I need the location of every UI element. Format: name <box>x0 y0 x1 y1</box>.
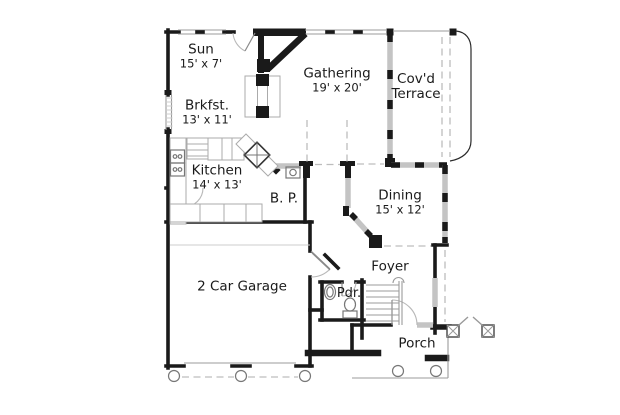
floor-plan-page: Sun 15' x 7' Gathering 19' x 20' Cov'd T… <box>0 0 620 415</box>
room-label-sun: Sun 15' x 7' <box>180 42 222 69</box>
room-label-dining: Dining 15' x 12' <box>375 188 425 215</box>
room-label-garage: 2 Car Garage <box>197 280 287 295</box>
floor-plan-drawing <box>0 0 620 415</box>
room-label-pdr: Pdr. <box>337 287 361 301</box>
room-label-terrace: Cov'd Terrace <box>391 72 440 102</box>
base-counters <box>170 204 262 222</box>
room-label-bp: B. P. <box>270 192 298 207</box>
garage-columns <box>169 371 311 382</box>
room-label-foyer: Foyer <box>371 260 408 275</box>
room-label-porch: Porch <box>398 337 435 352</box>
room-label-brkfst: Brkfst. 13' x 11' <box>182 98 232 125</box>
porch-columns <box>393 366 442 377</box>
media-cabinet <box>245 74 280 118</box>
room-label-gathering: Gathering 19' x 20' <box>303 66 370 93</box>
sink-icon <box>325 285 336 300</box>
pantry-shelves <box>187 138 208 159</box>
gate-post-icons <box>447 317 494 337</box>
room-label-kitchen: Kitchen 14' x 13' <box>192 163 243 190</box>
garage-door <box>170 245 310 363</box>
terrace-outline <box>442 31 471 161</box>
fireplace-icon <box>257 33 303 73</box>
